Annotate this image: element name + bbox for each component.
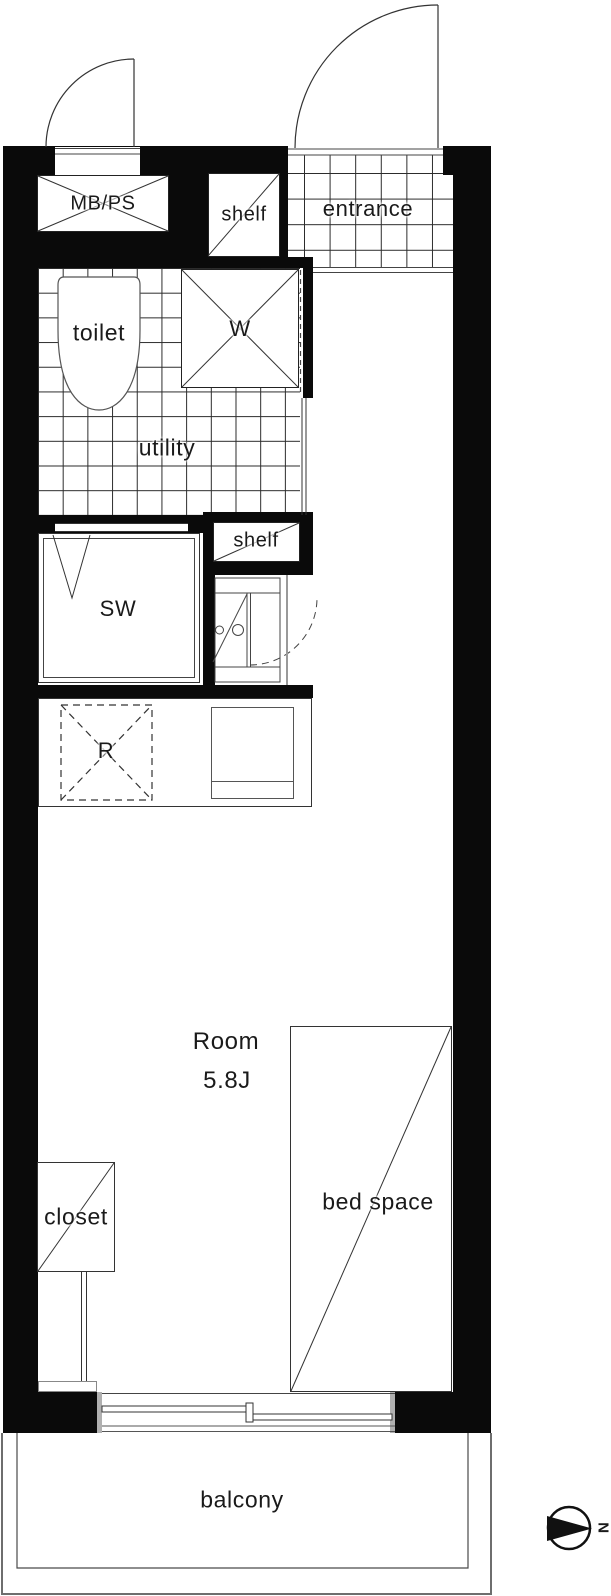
- label-utility: utility: [139, 435, 196, 462]
- washbasin-faucet: [216, 626, 224, 634]
- shower-folding-door: [53, 535, 90, 598]
- window-sash-junction: [246, 1403, 253, 1422]
- label-room-name: Room: [193, 1028, 259, 1056]
- label-shelf-mid: shelf: [233, 530, 278, 553]
- washbasin-bowl: [233, 625, 244, 636]
- label-bed-space: bed space: [322, 1189, 434, 1216]
- entrance-door-threshold: [288, 149, 443, 155]
- label-washer: W: [229, 316, 250, 342]
- window-sill-lines: [102, 1426, 395, 1432]
- window-jamb-left: [97, 1392, 102, 1433]
- label-toilet: toilet: [73, 320, 125, 347]
- label-shelf-top: shelf: [221, 204, 266, 227]
- mbps-door-threshold: [55, 149, 140, 155]
- label-shower-room: SW: [100, 596, 137, 622]
- entrance-door-arc: [295, 5, 438, 148]
- label-refrigerator: R: [98, 738, 115, 764]
- washroom-door-swing-dashed: [250, 598, 317, 665]
- balcony-window: [97, 1392, 395, 1433]
- window-sash-left: [102, 1406, 253, 1412]
- mbps-door-arc: [46, 59, 134, 147]
- closet-partition-lines: [82, 1272, 87, 1381]
- label-balcony: balcony: [200, 1487, 283, 1514]
- plan-linework: [0, 0, 611, 1596]
- label-room-size: 5.8J: [203, 1067, 251, 1095]
- label-north: N: [595, 1522, 611, 1533]
- label-entrance: entrance: [323, 196, 413, 222]
- balcony-outline: [2, 1433, 491, 1594]
- entrance-step-edge: [313, 268, 453, 273]
- mbps-door: [46, 59, 134, 147]
- window-sash-right: [246, 1414, 392, 1420]
- utility-door-leaf: [302, 398, 306, 515]
- balcony-outer-rail: [2, 1433, 491, 1594]
- label-mbps: MB/PS: [70, 193, 135, 216]
- washbasin-door-leaf: [247, 593, 251, 667]
- floor-plan: MB/PS shelf entrance toilet W utility sh…: [0, 0, 611, 1596]
- north-arrow: [547, 1507, 592, 1549]
- label-closet: closet: [44, 1204, 108, 1231]
- entrance-door: [295, 5, 438, 148]
- washbasin-unit: [213, 575, 317, 685]
- window-jamb-right: [390, 1392, 395, 1433]
- washbasin-diagonal: [213, 594, 247, 662]
